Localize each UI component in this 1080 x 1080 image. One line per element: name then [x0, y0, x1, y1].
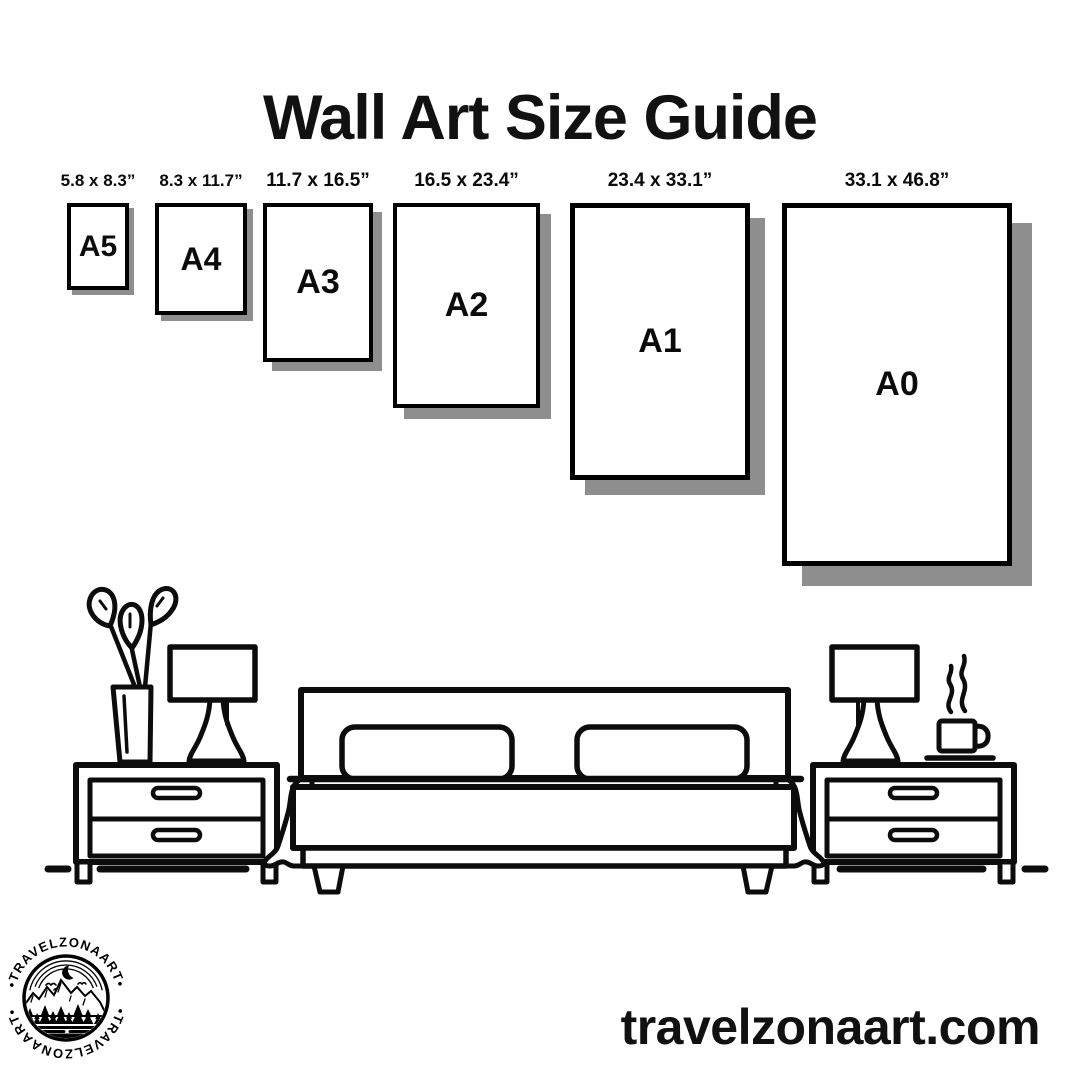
pillow [577, 727, 747, 779]
left-nightstand [76, 765, 277, 882]
drawer-handle [153, 788, 200, 798]
bed-leg [743, 866, 772, 892]
lamp-shade [170, 647, 255, 700]
left-table-lamp [170, 647, 255, 761]
lamp-base [843, 700, 898, 761]
leg [77, 862, 90, 882]
double-bed [264, 690, 824, 892]
right-table-lamp [832, 647, 917, 761]
cup-body [939, 721, 975, 751]
coffee-cup [927, 656, 993, 758]
bed-base [303, 848, 786, 866]
steam [961, 656, 965, 711]
drawer-handle [890, 830, 937, 840]
leg [1000, 862, 1013, 882]
drawer-handle [890, 788, 937, 798]
potted-plant [89, 589, 176, 762]
brand-logo-badge: •TRAVELZONAART• •TRAVELZONAART• [4, 934, 128, 1064]
bed-leg [314, 866, 343, 892]
vase [113, 687, 151, 762]
lamp-shade [832, 647, 917, 700]
duvet [293, 787, 794, 848]
pillow [342, 727, 512, 779]
lamp-base [189, 700, 244, 761]
website-url: travelzonaart.com [621, 998, 1040, 1056]
right-nightstand [813, 765, 1014, 882]
bedroom-scene-illustration [0, 0, 1080, 1080]
steam [948, 666, 952, 712]
drawer-handle [153, 830, 200, 840]
